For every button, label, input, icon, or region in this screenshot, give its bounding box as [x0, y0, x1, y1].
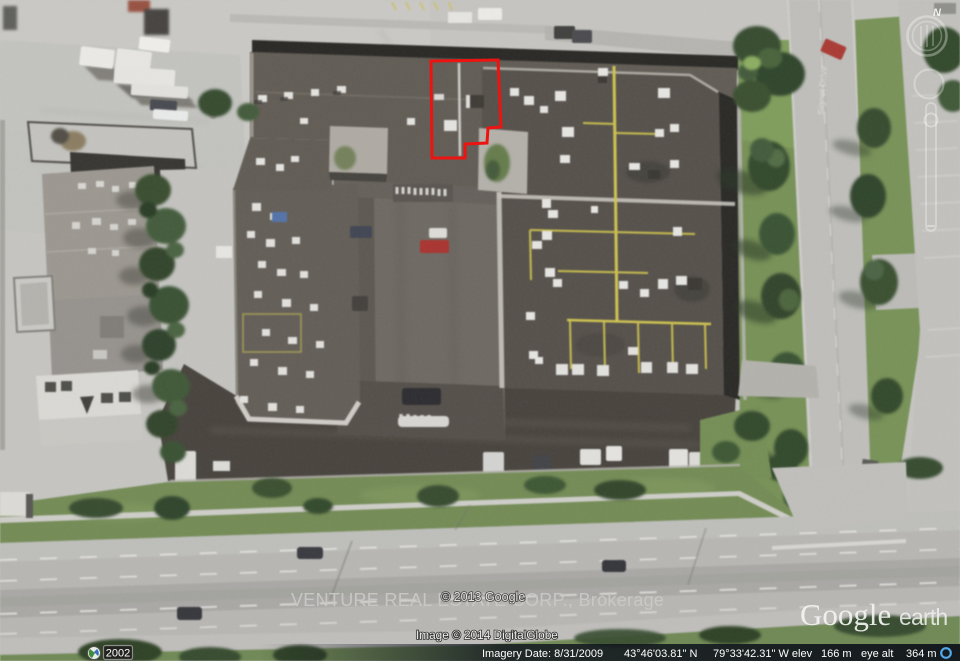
svg-text:2002: 2002 [106, 648, 130, 660]
svg-text:364 m: 364 m [906, 648, 937, 660]
svg-text:eye alt: eye alt [861, 648, 893, 660]
svg-text:166 m: 166 m [821, 648, 852, 660]
svg-text:earth: earth [899, 604, 947, 630]
svg-text:Imagery Date: 8/31/2009: Imagery Date: 8/31/2009 [482, 648, 603, 660]
svg-text:© 2013 Google: © 2013 Google [441, 590, 525, 604]
svg-text:Google: Google [800, 597, 891, 632]
svg-text:Image © 2014 DigitalGlobe: Image © 2014 DigitalGlobe [416, 628, 558, 642]
svg-text:79°33'42.31" W elev: 79°33'42.31" W elev [713, 648, 813, 660]
svg-text:43°46'03.81" N: 43°46'03.81" N [624, 648, 697, 660]
